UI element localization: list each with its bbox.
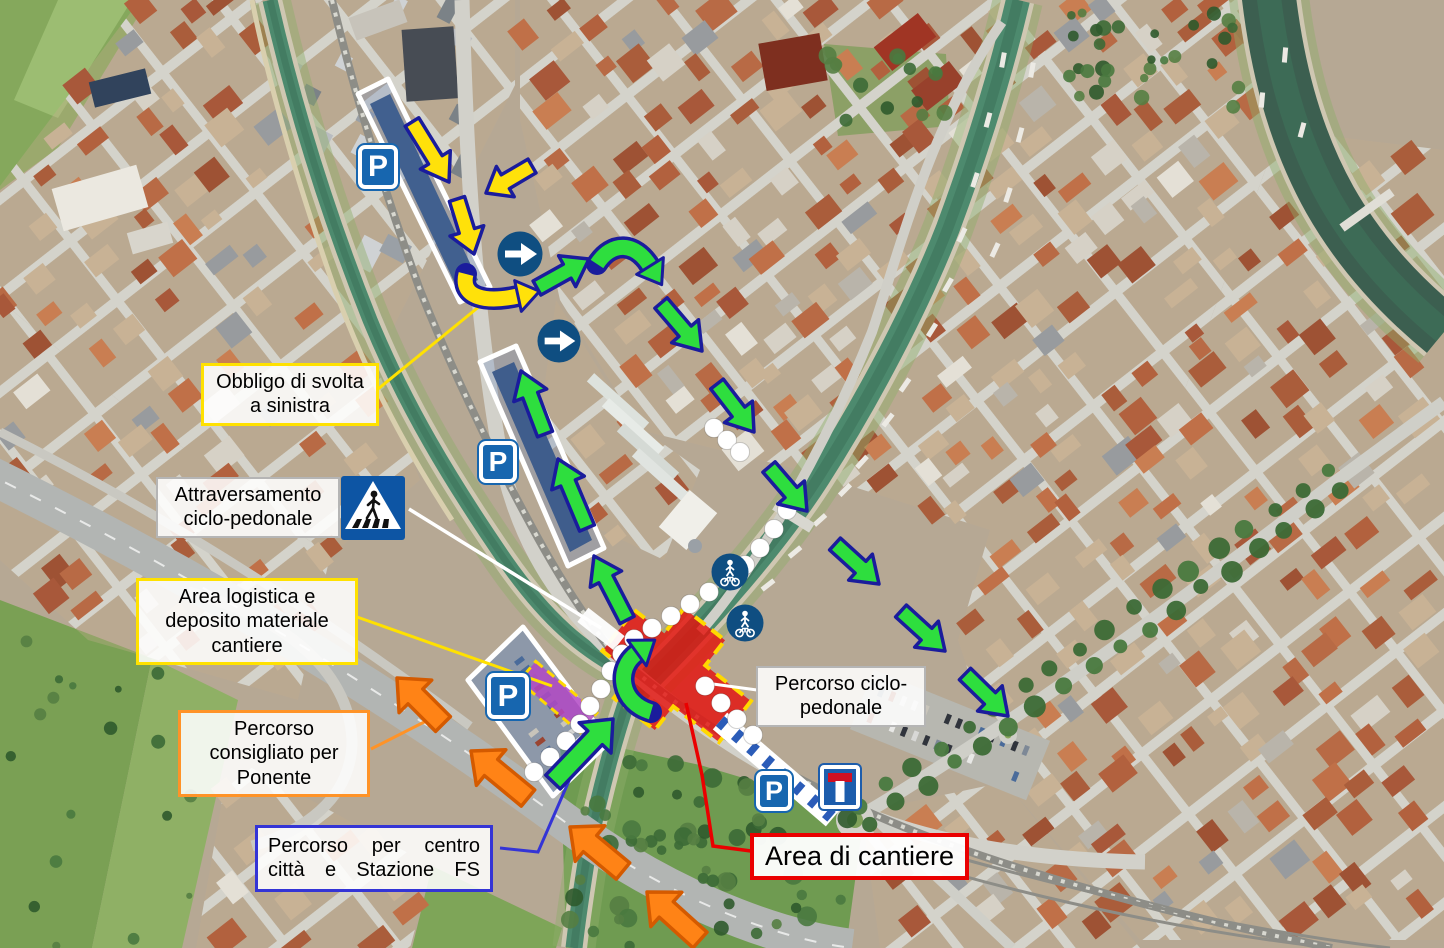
right-arrow-icon	[497, 231, 543, 277]
label-attraversamento-ciclo-pedonale: Attraversamento ciclo-pedonale	[156, 477, 340, 538]
label-percorso-centro-stazione: Percorso per centro città e Stazione FS	[255, 825, 493, 892]
construction-route-map: P P P P	[0, 0, 1444, 948]
route-dot	[643, 619, 662, 638]
parking-sign-letter: P	[498, 678, 519, 714]
label-text: Area di cantiere	[765, 841, 954, 871]
route-dot	[744, 726, 763, 745]
route-dot	[765, 520, 784, 539]
label-area-di-cantiere: Area di cantiere	[750, 833, 969, 880]
shared-pedestrian-bicycle-path-sign	[726, 604, 764, 642]
dead-end-stem	[836, 781, 845, 802]
route-dot	[712, 694, 731, 713]
label-area-logistica: Area logistica e deposito materiale cant…	[136, 578, 358, 665]
route-dot	[592, 680, 611, 699]
label-text: Percorso consigliato per Ponente	[210, 718, 339, 789]
label-percorso-ponente: Percorso consigliato per Ponente	[178, 710, 370, 797]
label-text: Percorso ciclo-pedonale	[775, 673, 907, 719]
route-dot	[662, 607, 681, 626]
route-dot	[525, 763, 544, 782]
route-dot	[696, 677, 715, 696]
label-obbligo-di-svolta: Obbligo di svolta a sinistra	[201, 363, 379, 426]
satellite-map-canvas	[0, 0, 1444, 948]
label-text: Percorso per centro città e Stazione FS	[268, 834, 480, 883]
parking-sign-letter: P	[765, 776, 783, 807]
mandatory-right-turn-sign	[497, 231, 543, 277]
parking-sign: P	[358, 145, 398, 189]
parking-sign: P	[756, 771, 792, 811]
parking-sign: P	[487, 673, 529, 719]
route-dot	[751, 539, 770, 558]
label-text: Obbligo di svolta a sinistra	[216, 371, 364, 417]
label-text: Attraversamento ciclo-pedonale	[175, 484, 322, 530]
parking-sign: P	[479, 441, 517, 483]
dead-end-sign	[820, 765, 860, 809]
mandatory-right-turn-sign	[537, 319, 581, 363]
label-percorso-ciclo-pedonale: Percorso ciclo-pedonale	[756, 666, 926, 727]
shared-pedestrian-bicycle-path-sign	[711, 553, 749, 591]
route-dot	[581, 697, 600, 716]
pedestrian-bicycle-icon	[711, 553, 749, 591]
parking-sign-letter: P	[489, 446, 508, 478]
pedestrian-bicycle-icon	[726, 604, 764, 642]
route-dot	[731, 443, 750, 462]
route-dot	[681, 595, 700, 614]
parking-sign-letter: P	[368, 150, 388, 184]
label-text: Area logistica e deposito materiale cant…	[165, 586, 328, 657]
pedestrian-crossing-sign	[340, 474, 406, 542]
route-dot	[728, 710, 747, 729]
right-arrow-icon	[537, 319, 581, 363]
pedestrian-crossing-icon	[340, 474, 406, 542]
